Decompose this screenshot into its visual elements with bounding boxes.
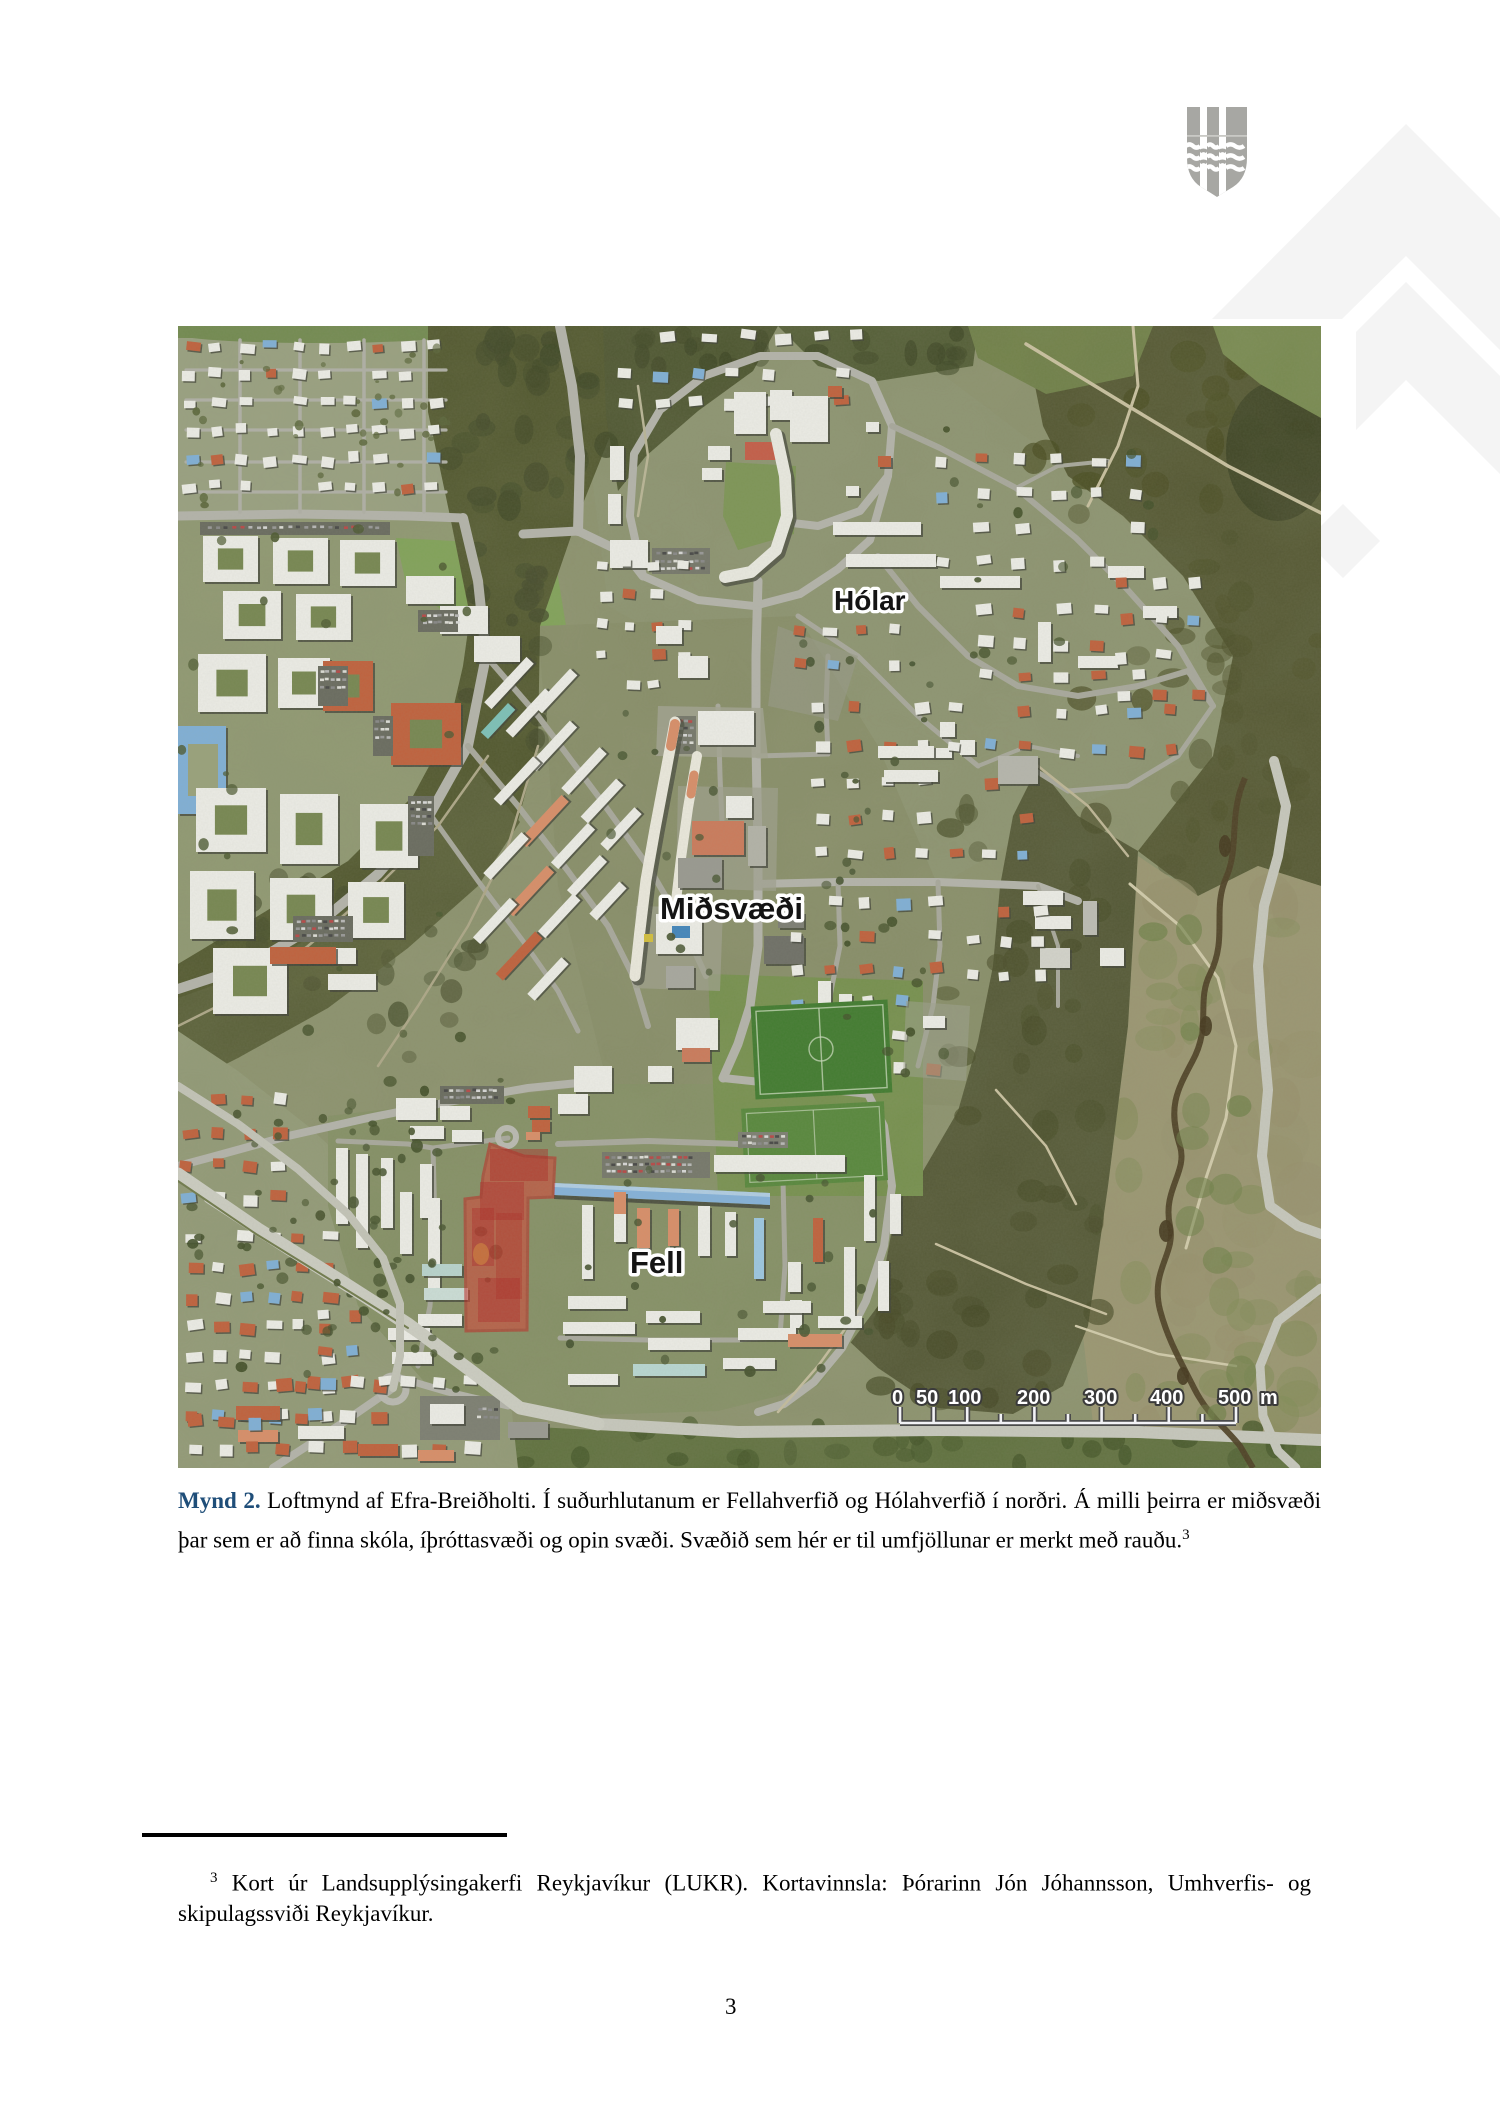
svg-text:500: 500 [1218,1387,1251,1409]
svg-text:Fell: Fell [630,1245,683,1280]
svg-text:400: 400 [1150,1387,1183,1409]
svg-text:300: 300 [1084,1387,1117,1409]
svg-text:100: 100 [948,1387,981,1409]
svg-text:50: 50 [916,1387,938,1409]
svg-text:m: m [1260,1387,1278,1409]
svg-text:Hólar: Hólar [834,585,906,616]
svg-text:0: 0 [892,1387,903,1409]
svg-text:Miðsvæði: Miðsvæði [660,891,803,926]
svg-text:200: 200 [1017,1387,1050,1409]
